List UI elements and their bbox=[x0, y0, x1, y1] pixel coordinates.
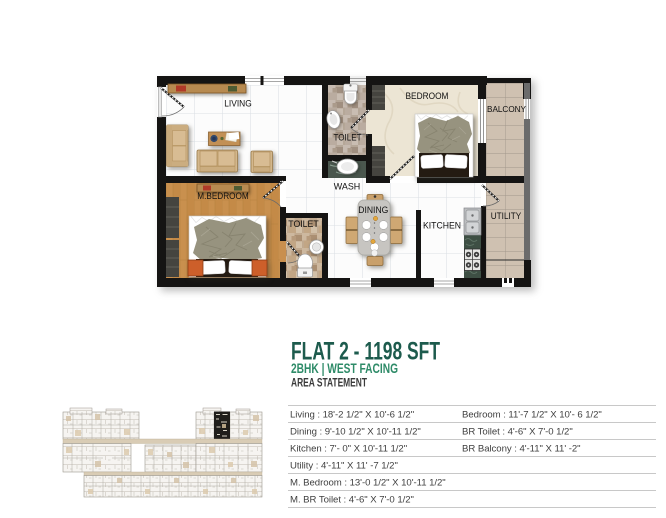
svg-text:Kitchen : 7'- 0" X 10'-11 1/2": Kitchen : 7'- 0" X 10'-11 1/2" bbox=[290, 444, 407, 455]
svg-text:Living : 18'-2 1/2" X 10'-6 1/: Living : 18'-2 1/2" X 10'-6 1/2" bbox=[290, 410, 414, 421]
svg-text:UTILITY: UTILITY bbox=[491, 211, 522, 221]
svg-text:WASH: WASH bbox=[334, 181, 361, 191]
svg-text:BEDROOM: BEDROOM bbox=[406, 91, 449, 101]
svg-text:BALCONY: BALCONY bbox=[487, 104, 526, 114]
svg-text:M. BR Toilet : 4'-6" X 7'-0 1/: M. BR Toilet : 4'-6" X 7'-0 1/2" bbox=[290, 495, 414, 506]
svg-text:KITCHEN: KITCHEN bbox=[423, 220, 461, 230]
svg-text:BR Toilet : 4'-6" X 7'-0 1/2": BR Toilet : 4'-6" X 7'-0 1/2" bbox=[462, 427, 573, 438]
svg-text:DINING: DINING bbox=[358, 205, 388, 215]
svg-text:Utility : 4'-11" X 11' -7 1/2": Utility : 4'-11" X 11' -7 1/2" bbox=[290, 461, 398, 472]
svg-text:AREA STATEMENT: AREA STATEMENT bbox=[291, 378, 367, 390]
svg-text:2BHK | WEST FACING: 2BHK | WEST FACING bbox=[291, 360, 398, 376]
svg-text:Dining : 9'-10 1/2" X 10'-11 1: Dining : 9'-10 1/2" X 10'-11 1/2" bbox=[290, 427, 421, 438]
svg-text:TOILET: TOILET bbox=[288, 219, 319, 229]
svg-text:M. Bedroom : 13'-0 1/2" X 10'-: M. Bedroom : 13'-0 1/2" X 10'-11 1/2" bbox=[290, 478, 446, 489]
svg-text:TOILET: TOILET bbox=[334, 133, 362, 143]
svg-text:LIVING: LIVING bbox=[224, 98, 252, 108]
svg-text:Bedroom : 11'-7 1/2" X 10'- 6: Bedroom : 11'-7 1/2" X 10'- 6 1/2" bbox=[462, 410, 602, 421]
svg-text:M.BEDROOM: M.BEDROOM bbox=[197, 191, 249, 202]
svg-text:BR Balcony : 4'-11" X 11' -2": BR Balcony : 4'-11" X 11' -2" bbox=[462, 444, 581, 455]
